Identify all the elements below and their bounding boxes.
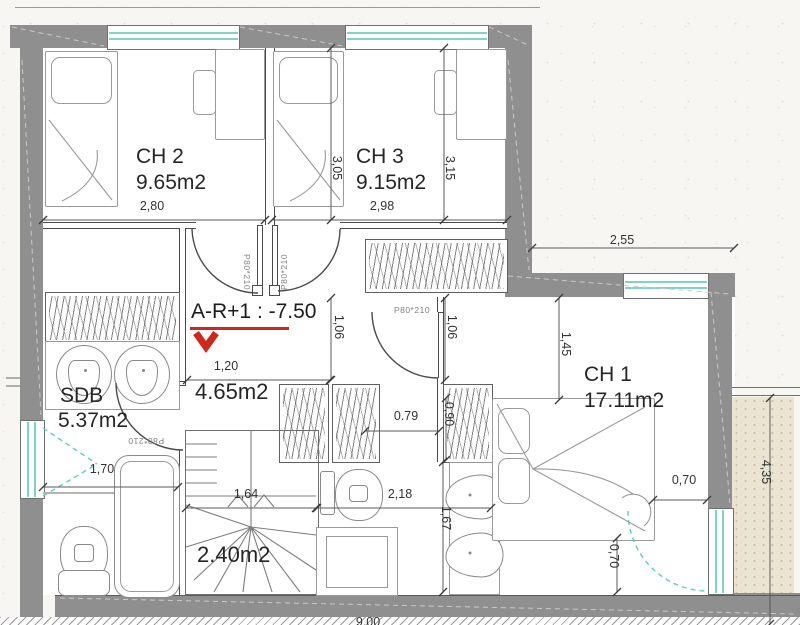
pillow-ch3 [279,57,338,104]
sink-basin [126,360,158,397]
window-glass-line [625,281,707,283]
bottom-wall [55,595,800,619]
dimension-label: 1,67 [439,506,453,530]
roof-overhang-line [15,7,540,8]
door-jamb-right [272,225,278,289]
desk-ch2 [215,49,265,140]
window-glass-line [27,422,29,497]
window-door-ch1-right [708,508,734,595]
wardrobe-sdb [45,292,180,344]
ground-hatch-strip [0,617,800,625]
left-wall-upper [20,25,43,420]
faucet-dot [469,494,472,497]
faucet-dot [469,552,472,555]
room-area-ch3: 9.15m2 [356,171,426,195]
stairwell [185,430,319,595]
partition-bedrooms-hall-left [43,222,196,229]
edge-ticks [6,378,20,386]
room-area-ch2: 9.65m2 [136,171,206,195]
door-leaf-ch1 [438,312,444,380]
window-glass-line [34,422,36,497]
sink-sdb-2 [114,345,170,404]
room-area-stairs: 2.40m2 [197,542,270,568]
room-name-ch2: CH 2 [136,145,184,169]
dimension-label: 2,98 [370,199,394,213]
dimension-label: 1,06 [332,315,346,339]
right-wall [708,288,732,508]
dimension-label: 0,70 [607,544,621,568]
exterior-ground-band [732,397,794,593]
dimension-label: 9,00 [356,615,380,625]
dimension-label: 4,35 [759,460,773,484]
chair-ch2 [193,70,216,115]
toilet-wc-glyph [74,544,94,562]
window-glass-line [715,510,717,593]
toilet-bath-glyph [349,485,368,502]
bathtub [114,455,180,598]
wc-divider-line [43,492,115,494]
dimension-label: 1,70 [90,462,114,476]
door-size-tag: P80*210 [279,254,289,290]
pillow-ch2 [51,57,112,104]
dimension-label: 3,15 [443,156,457,180]
dimension-label: 2,55 [610,233,634,247]
window-glass-line [347,32,487,34]
window-glass-line [347,38,487,40]
room-name-sdb: SDB [60,384,103,408]
door-size-tag: P80*210 [242,254,252,290]
toilet-wc-tank [58,570,110,596]
dimension-label: 1,20 [214,359,238,373]
chair-ch3 [434,70,457,115]
window-ch2 [107,25,240,50]
door-jamb-left [257,225,263,289]
dimension-label: 2,18 [388,487,412,501]
desk-ch3 [456,49,507,140]
dimension-label: 1,64 [234,487,258,501]
window-ch3 [345,25,489,50]
dimension-label: 1,45 [559,332,573,356]
room-area-hall: 4.65m2 [195,379,268,405]
faucet-dot [84,369,87,372]
window-ch1-top [623,273,709,299]
room-name-ch3: CH 3 [356,145,404,169]
window-glass-line [109,38,238,40]
window-glass-line [722,510,724,593]
left-wall-lower [20,497,43,618]
room-name-ch1: CH 1 [584,363,632,387]
level-marker-text: A-R+1 : -7.50 [191,300,316,324]
window-glass-line [625,287,707,289]
dimension-label: 0,90 [442,402,456,426]
partition-sdb-upper [179,228,186,383]
pillow-ch1-1 [498,408,530,454]
room-area-ch1: 17.11m2 [584,389,664,413]
top-wall-mid-pier [238,25,345,48]
right-upper-wall [505,25,532,275]
wardrobe-ch3 [365,239,508,293]
dimension-label: 0,70 [672,473,696,487]
door-jamb-foot-left [252,285,263,296]
ch1-top-wall-left [505,273,623,297]
wardrobe-hall-2 [332,384,380,463]
partition-ch1-stub [437,297,444,312]
floor-plan: CH 2 9.65m2 CH 3 9.15m2 CH 1 17.11m2 SDB… [0,0,800,625]
shower-unit-inner [326,536,388,588]
toilet-bath-tank [320,471,335,515]
faucet-dot [142,369,145,372]
level-marker-underline [190,327,289,330]
door-size-tag: P80*210 [128,436,164,446]
room-area-sdb: 5.37m2 [58,409,128,433]
dimension-label: 3,05 [330,156,344,180]
door-size-tag: P80*210 [394,305,430,315]
dimension-label: 2,80 [140,199,164,213]
window-glass-line [109,32,238,34]
bathtub-inner [120,461,174,592]
partition-bedrooms-hall-right [340,222,507,229]
pillow-ch1-2 [498,458,530,504]
window-door-sdb-left [20,420,45,499]
dimension-label: 1,06 [445,315,459,339]
dimension-label: 0.79 [394,409,418,423]
